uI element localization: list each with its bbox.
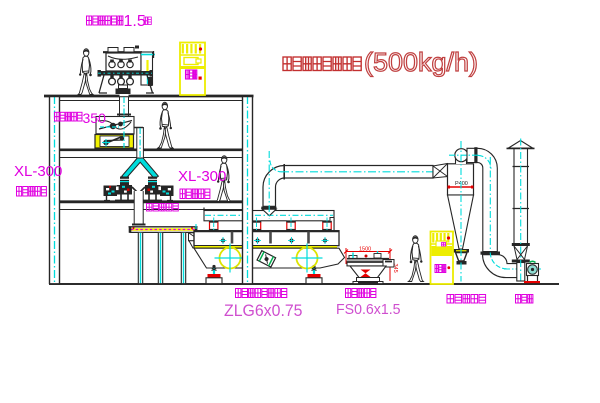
svg-text:1500: 1500	[359, 247, 371, 253]
svg-text:(500kg/h): (500kg/h)	[364, 47, 478, 77]
svg-text:XL-300: XL-300	[14, 163, 62, 180]
svg-text:350: 350	[83, 110, 107, 126]
svg-text:ZLG6x0.75: ZLG6x0.75	[224, 301, 303, 320]
svg-text:XL-300: XL-300	[178, 168, 226, 185]
svg-text:1.5: 1.5	[124, 13, 146, 30]
svg-text:FS0.6x1.5: FS0.6x1.5	[336, 301, 401, 318]
